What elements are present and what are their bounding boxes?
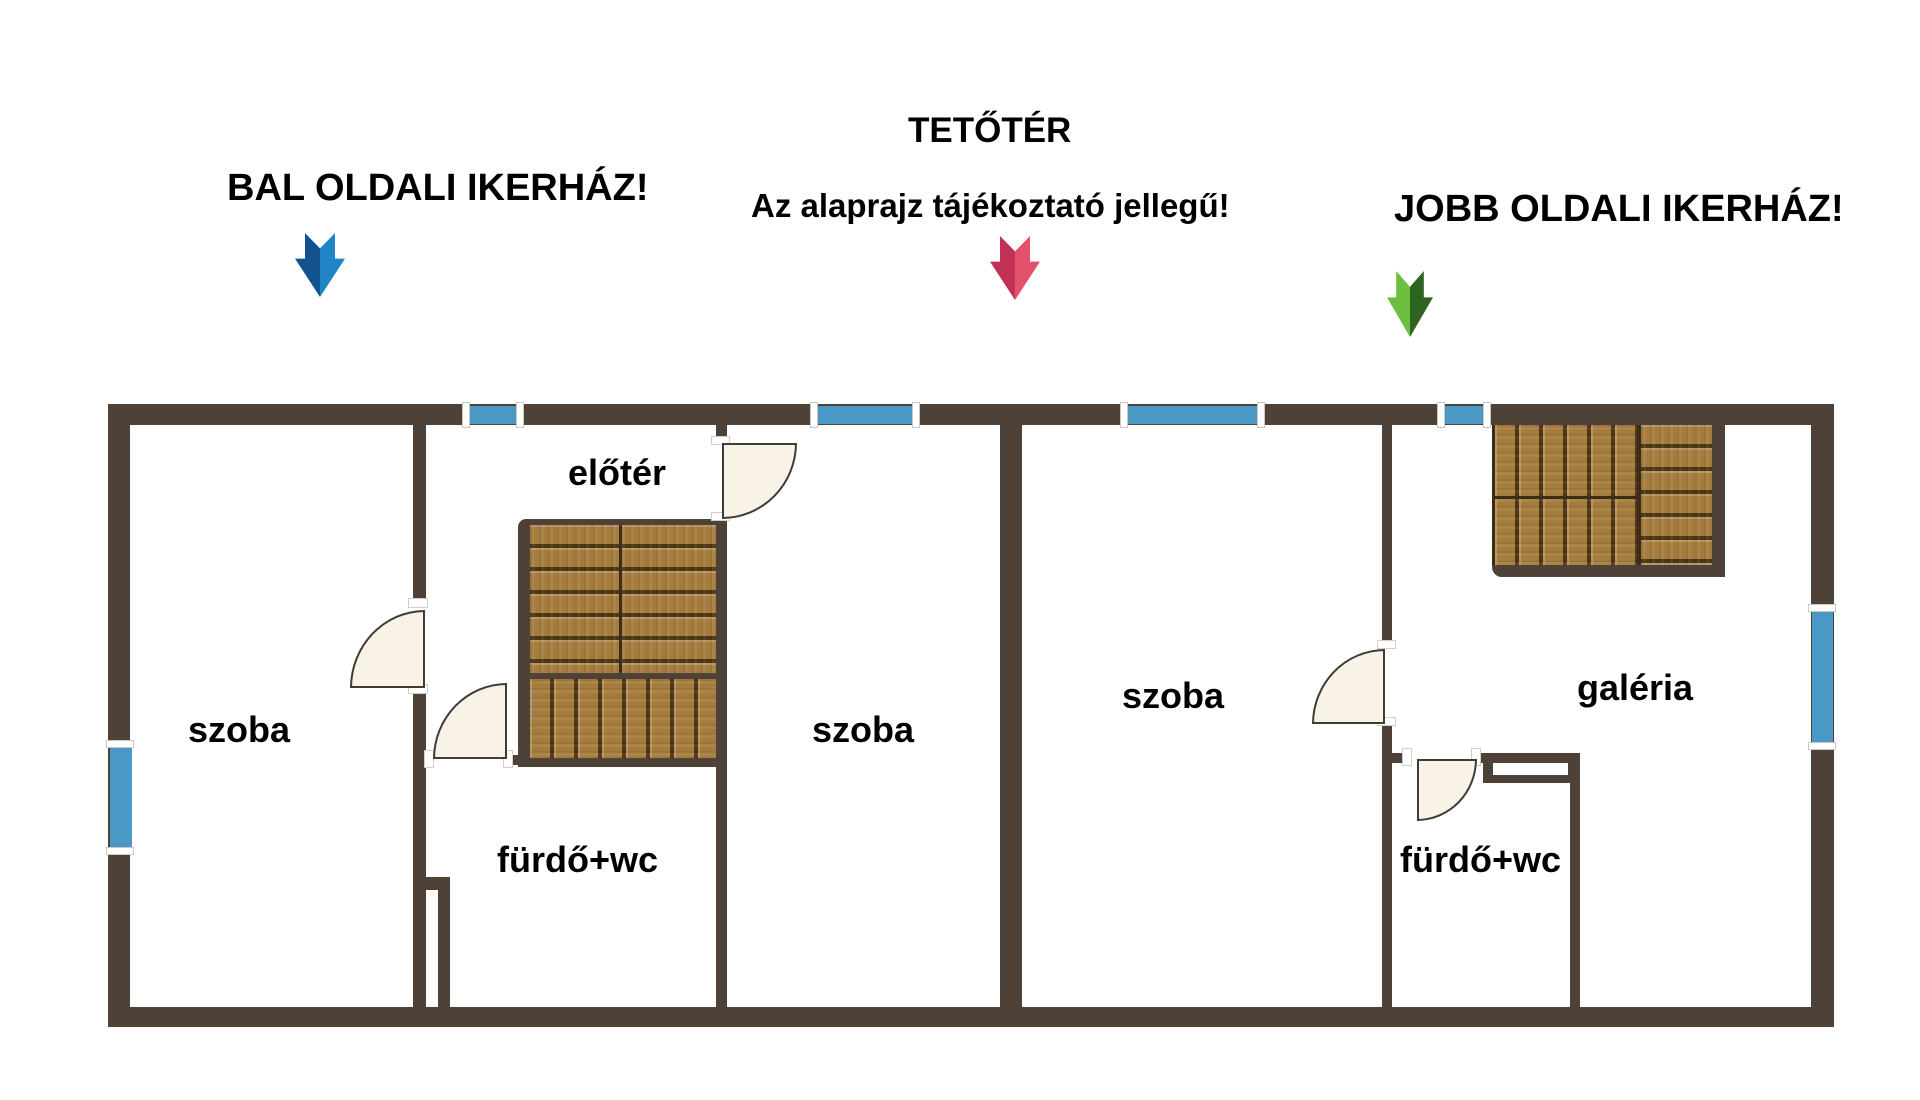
stairs-left-center-divider bbox=[619, 525, 622, 673]
page-title: TETŐTÉR bbox=[908, 112, 1071, 151]
stairs-right-upper-treads bbox=[1492, 425, 1637, 565]
stairs-right-stringer bbox=[1712, 425, 1725, 577]
room-label-furdo-right: fürdő+wc bbox=[1400, 842, 1561, 878]
window-cap bbox=[516, 402, 524, 428]
window-cap bbox=[106, 740, 134, 748]
wall-szoba-left-upper bbox=[413, 425, 426, 607]
heading-right-house: JOBB OLDALI IKERHÁZ! bbox=[1394, 189, 1844, 231]
window-top-3 bbox=[1128, 406, 1257, 424]
stairs-right bbox=[1492, 425, 1725, 577]
window-left bbox=[110, 748, 132, 847]
green-down-arrow-icon bbox=[1387, 271, 1433, 337]
stairs-left-stringer bbox=[518, 519, 530, 767]
window-cap bbox=[1120, 402, 1128, 428]
stairs-right-bottom-edge bbox=[1492, 565, 1725, 577]
chimney-cap bbox=[426, 877, 450, 890]
door-jamb bbox=[1402, 748, 1412, 766]
window-top-4 bbox=[1445, 406, 1483, 424]
window-cap bbox=[1437, 402, 1445, 428]
window-top-2 bbox=[818, 406, 912, 424]
window-right bbox=[1812, 612, 1833, 742]
door-furdo-left bbox=[433, 683, 507, 759]
heading-left-house: BAL OLDALI IKERHÁZ! bbox=[227, 168, 649, 210]
stairs-left-upper-treads bbox=[530, 525, 716, 673]
blue-down-arrow-shape bbox=[295, 233, 345, 297]
wall-center-party bbox=[1000, 425, 1022, 1007]
stairs-left bbox=[518, 519, 727, 767]
room-label-szoba-left: szoba bbox=[188, 712, 290, 748]
blue-down-arrow-icon bbox=[295, 233, 345, 297]
wall-top bbox=[108, 404, 1834, 425]
door-jamb bbox=[1377, 640, 1396, 649]
pink-down-arrow-shape bbox=[990, 236, 1040, 300]
room-label-szoba-right: szoba bbox=[1122, 678, 1224, 714]
wall-bath-right-side bbox=[1570, 783, 1580, 1007]
green-down-arrow-shape bbox=[1387, 271, 1433, 337]
window-cap bbox=[810, 402, 818, 428]
window-cap bbox=[1808, 742, 1836, 750]
window-cap bbox=[106, 847, 134, 855]
stairs-right-side-treads bbox=[1641, 425, 1712, 565]
page-subtitle: Az alaprajz tájékoztató jellegű! bbox=[751, 188, 1230, 224]
door-szoba-left bbox=[350, 610, 425, 688]
wall-szoba-left-lower bbox=[413, 688, 426, 1007]
chimney-duct bbox=[438, 890, 450, 1007]
window-cap bbox=[462, 402, 470, 428]
window-cap bbox=[1483, 402, 1491, 428]
wall-szoba-right-upper bbox=[1382, 425, 1392, 645]
floor-plan-page: BAL OLDALI IKERHÁZ! TETŐTÉR Az alaprajz … bbox=[0, 0, 1920, 1100]
stairs-right-section-divider bbox=[1637, 425, 1641, 565]
door-furdo-right bbox=[1417, 759, 1477, 821]
door-jamb bbox=[408, 598, 428, 608]
window-cap bbox=[1808, 604, 1836, 612]
pink-down-arrow-icon bbox=[990, 236, 1040, 300]
window-top-1 bbox=[470, 406, 516, 424]
wall-bath-right-b bbox=[1477, 753, 1580, 763]
wall-left bbox=[108, 404, 130, 1027]
room-label-szoba-middle: szoba bbox=[812, 712, 914, 748]
stairs-left-lower-treads bbox=[530, 679, 716, 758]
room-label-galeria: galéria bbox=[1577, 670, 1693, 706]
room-label-eloter: előtér bbox=[568, 455, 666, 491]
room-label-furdo-left: fürdő+wc bbox=[497, 842, 658, 878]
door-szoba-middle bbox=[722, 443, 797, 519]
window-cap bbox=[1257, 402, 1265, 428]
stairs-left-bottom-edge bbox=[518, 758, 727, 767]
wall-bottom bbox=[108, 1007, 1834, 1027]
stairs-right-mid-divider bbox=[1492, 496, 1637, 499]
door-szoba-right bbox=[1312, 649, 1385, 724]
wall-szoba-right-lower bbox=[1382, 723, 1392, 1007]
niche-slot bbox=[1493, 763, 1568, 775]
window-cap bbox=[912, 402, 920, 428]
